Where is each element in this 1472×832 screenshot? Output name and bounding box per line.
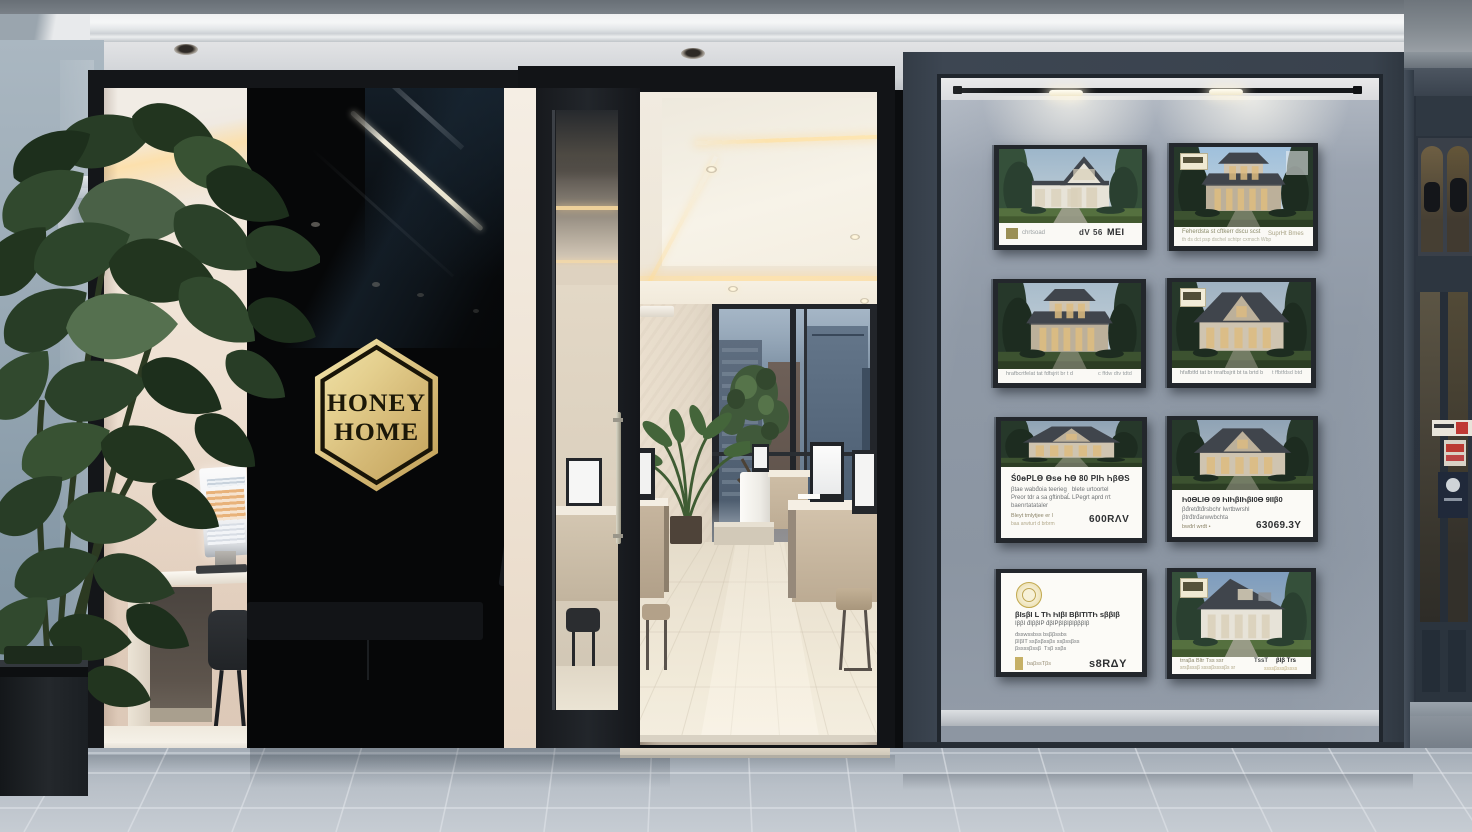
- svg-text:HOME: HOME: [334, 417, 419, 446]
- svg-text:HONEY: HONEY: [327, 388, 426, 417]
